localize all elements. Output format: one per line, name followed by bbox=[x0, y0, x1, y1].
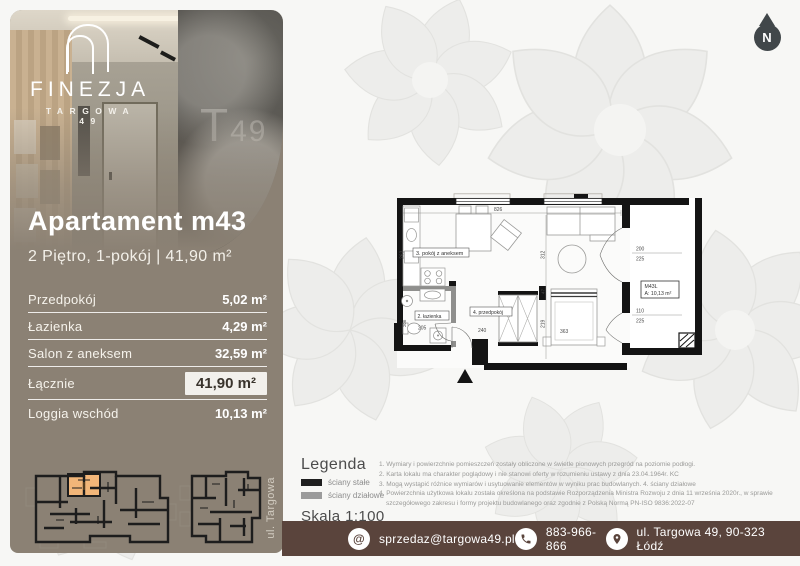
dim-bed-w: 363 bbox=[560, 329, 569, 335]
compass-north-indicator: N bbox=[752, 13, 782, 51]
email-at-icon: @ bbox=[348, 528, 370, 550]
table-row: Łazienka 4,29 m² bbox=[28, 313, 267, 340]
phone-contact[interactable]: 883-966-866 bbox=[515, 525, 606, 553]
dim-kitchen: 262 bbox=[400, 250, 406, 259]
partition-wall-swatch bbox=[301, 492, 322, 499]
note-line: 3. Mogą wystąpić różnice wymiarów i usyt… bbox=[379, 480, 797, 490]
brand-subname: TARGOWA 49 bbox=[31, 106, 150, 126]
dim-room-lower: 219 bbox=[541, 319, 547, 328]
dim-room-mid: 47 bbox=[541, 289, 546, 294]
dim-top: 826 bbox=[494, 207, 503, 213]
row-label: Przedpokój bbox=[28, 292, 96, 307]
area-table: Przedpokój 5,02 m² Łazienka 4,29 m² Salo… bbox=[28, 286, 267, 426]
row-value: 4,29 m² bbox=[222, 319, 267, 334]
row-value: 5,02 m² bbox=[222, 292, 267, 307]
bathroom-label: 2. łazienka bbox=[418, 314, 442, 320]
row-label: Łącznie bbox=[28, 376, 75, 391]
legend-item-label: ściany działowe bbox=[328, 491, 384, 500]
dim-bath-v: 206 bbox=[402, 319, 407, 327]
loggia-interior bbox=[630, 198, 700, 353]
apartment-title: Apartament m43 bbox=[28, 206, 247, 237]
row-label: Salon z aneksem bbox=[28, 346, 132, 361]
address-text: ul. Targowa 49, 90-323 Łódź bbox=[637, 525, 775, 553]
row-label: Łazienka bbox=[28, 319, 82, 334]
note-line: 2. Karta lokalu ma charakter poglądowy i… bbox=[379, 470, 797, 480]
note-line: 4. Powierzchnia użytkowa lokalu została … bbox=[379, 489, 797, 509]
apartment-subtitle: 2 Piętro, 1-pokój | 41,90 m² bbox=[28, 248, 232, 266]
entrance-triangle-marker bbox=[457, 369, 473, 383]
email-text: sprzedaz@targowa49.pl bbox=[379, 532, 515, 546]
note-line: 1. Wymiary i powierzchnie pomieszczeń zo… bbox=[379, 460, 797, 470]
wardrobe bbox=[498, 291, 538, 346]
location-pin-icon bbox=[606, 528, 628, 550]
disclaimer-notes: 1. Wymiary i powierzchnie pomieszczeń zo… bbox=[379, 460, 797, 509]
bed bbox=[543, 289, 605, 346]
dim-bath-w: 205 bbox=[418, 326, 427, 332]
legend-item-label: ściany stałe bbox=[328, 478, 370, 487]
building-overview-plans bbox=[20, 458, 272, 554]
loggia-code-label: M43L bbox=[645, 284, 658, 290]
address-contact[interactable]: ul. Targowa 49, 90-323 Łódź bbox=[606, 525, 775, 553]
brand-name: FINEZJA bbox=[30, 78, 150, 102]
building-2-plan bbox=[180, 472, 260, 542]
building-1-plan bbox=[26, 472, 176, 548]
floorplan-drawing: 3. pokój z aneksem 2. łazienka 4. przedp… bbox=[394, 193, 709, 399]
row-value: 32,59 m² bbox=[215, 346, 267, 361]
row-value: 10,13 m² bbox=[215, 406, 267, 421]
apartment-info-panel: T49 FINEZJA TARGOWA 49 Apartament m43 2 … bbox=[10, 10, 283, 553]
legend-title: Legenda bbox=[301, 456, 385, 474]
legend-item: ściany działowe bbox=[301, 491, 385, 500]
email-contact[interactable]: @ sprzedaz@targowa49.pl bbox=[348, 528, 515, 550]
loggia-area-label: A: 10,13 m² bbox=[645, 291, 672, 297]
arch-logo-icon bbox=[67, 24, 109, 72]
dim-win1-w: 200 bbox=[636, 247, 645, 253]
legend: Legenda ściany stałe ściany działowe Ska… bbox=[301, 456, 385, 525]
phone-text: 883-966-866 bbox=[546, 525, 606, 553]
dim-win2-w: 110 bbox=[636, 309, 644, 315]
dim-hall-w: 240 bbox=[478, 328, 487, 334]
room-label: 3. pokój z aneksem bbox=[416, 251, 464, 257]
solid-wall-swatch bbox=[301, 479, 322, 486]
dim-win2-h: 225 bbox=[636, 319, 645, 325]
phone-icon bbox=[515, 528, 537, 550]
dim-room-upper: 312 bbox=[541, 250, 547, 259]
contact-footer: @ sprzedaz@targowa49.pl 883-966-866 ul. … bbox=[282, 521, 800, 556]
row-label: Loggia wschód bbox=[28, 406, 119, 421]
brand-logo: FINEZJA TARGOWA 49 bbox=[26, 24, 150, 126]
table-row-total: Łącznie 41,90 m² bbox=[28, 367, 267, 400]
total-value-badge: 41,90 m² bbox=[185, 372, 267, 395]
table-row: Przedpokój 5,02 m² bbox=[28, 286, 267, 313]
legend-item: ściany stałe bbox=[301, 478, 385, 487]
table-row: Loggia wschód 10,13 m² bbox=[28, 400, 267, 426]
street-label: ul. Targowa bbox=[265, 477, 277, 539]
table-row: Salon z aneksem 32,59 m² bbox=[28, 340, 267, 367]
loggia-hatched-corner bbox=[679, 333, 695, 348]
dim-win1-h: 225 bbox=[636, 257, 645, 263]
compass-n-label: N bbox=[754, 24, 781, 51]
hallway-label: 4. przedpokój bbox=[473, 310, 503, 316]
